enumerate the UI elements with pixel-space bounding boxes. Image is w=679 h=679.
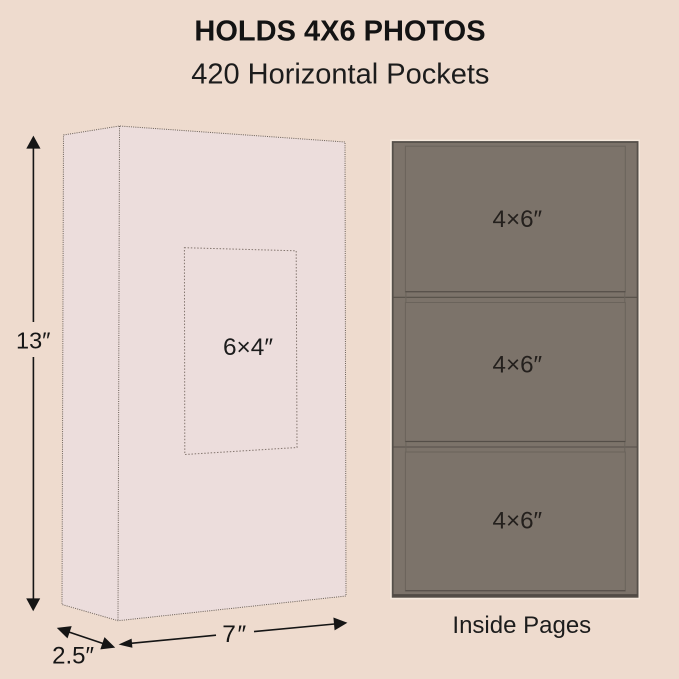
svg-text:Inside Pages: Inside Pages [452,612,591,639]
svg-text:4×6″: 4×6″ [493,351,543,378]
svg-text:HOLDS 4X6 PHOTOS: HOLDS 4X6 PHOTOS [194,15,485,47]
svg-text:2.5″: 2.5″ [52,643,94,670]
svg-text:7″: 7″ [222,621,246,648]
svg-text:6×4″: 6×4″ [223,334,273,361]
svg-text:4×6″: 4×6″ [493,508,543,535]
svg-text:4×6″: 4×6″ [493,206,543,233]
svg-text:13″: 13″ [16,327,50,353]
svg-text:420 Horizontal Pockets: 420 Horizontal Pockets [191,58,489,90]
